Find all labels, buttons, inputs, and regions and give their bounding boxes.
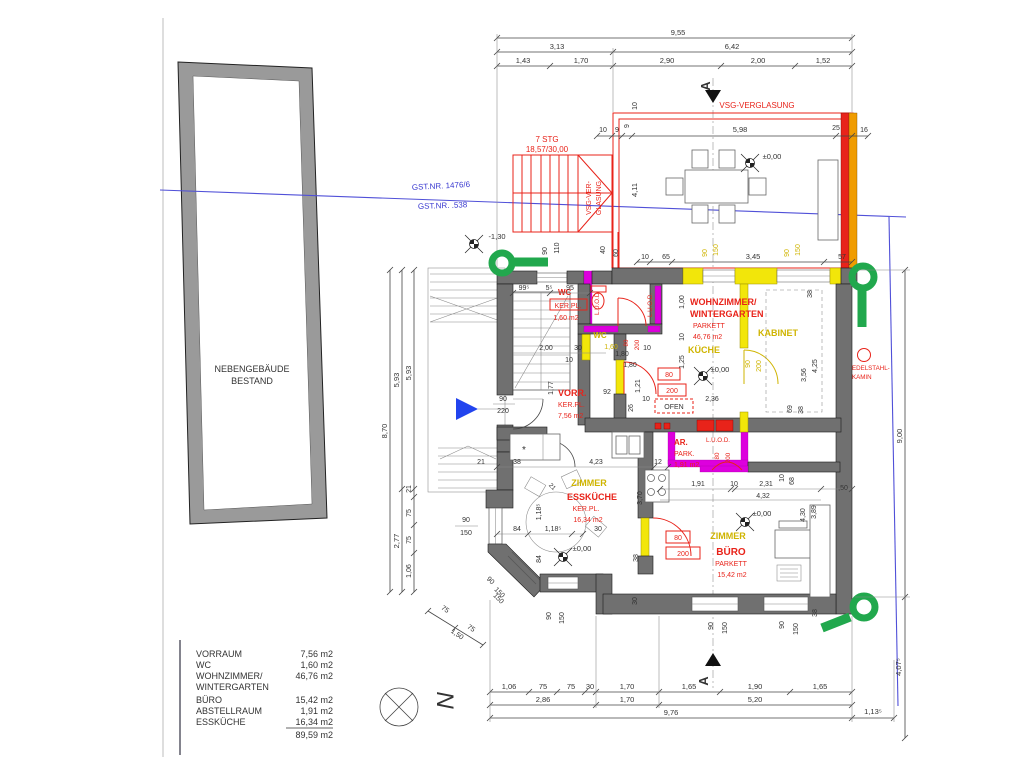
dim-191: 1,91 xyxy=(691,481,705,488)
dim-180b: 1,80 xyxy=(623,362,637,369)
level-marker-minus130 xyxy=(465,235,483,253)
dim-diag75a: 75 xyxy=(440,605,450,615)
stair-note-1: 7 STG xyxy=(535,135,558,144)
door-ar-w: 80 xyxy=(714,452,721,459)
cabinet-star: * xyxy=(510,434,560,460)
ofen-label: OFEN xyxy=(664,404,683,411)
dim-30a: 30 xyxy=(574,345,582,352)
dim-26: 26 xyxy=(628,404,635,412)
win-b90c: 90 xyxy=(779,621,786,629)
external-stair: 7 STG 18,57/30,00 VSG-VER- GLASUNG 90 11… xyxy=(513,135,620,268)
room-kueche-name: KÜCHE xyxy=(688,345,720,355)
floorplan-page: NEBENGEBÄUDE BESTAND GST.NR. 1476/6 GST.… xyxy=(0,0,1024,764)
win-b150c: 150 xyxy=(793,623,800,635)
legend-value-5: 1,91 m2 xyxy=(300,706,333,716)
win-b90b: 90 xyxy=(708,622,715,630)
section-marker-bottom: A xyxy=(696,653,721,686)
legend-label-2: WOHNZIMMER/ xyxy=(196,671,263,681)
dim-g9b: 9 xyxy=(624,124,631,128)
dim-l21: 21 xyxy=(406,485,413,493)
room-wz-name2: WINTERGARTEN xyxy=(690,309,764,319)
key-icon-topleft xyxy=(492,253,548,273)
sideboard xyxy=(818,160,838,240)
dim-10c: 10 xyxy=(642,396,650,403)
dim-389: 3,89 xyxy=(811,505,818,519)
left-dimension-chain: 8,70 5,93 2,77 5,93 21 75 75 1,06 xyxy=(380,267,417,595)
level-minus130: -1,30 xyxy=(488,232,505,241)
dim-642: 6,42 xyxy=(725,42,740,51)
section-marker-top: A xyxy=(698,81,721,103)
dim-ti345: 3,45 xyxy=(746,252,761,261)
door-kabinet-w: 90 xyxy=(745,360,752,368)
level-kueche: ±0,00 xyxy=(711,365,730,374)
door-ar-h: 200 xyxy=(725,452,732,463)
dim-38c: 38 xyxy=(812,609,819,617)
door-kueche-h: 200 xyxy=(666,388,678,395)
dim-30c: 30 xyxy=(632,597,639,605)
floorplan-drawing: NEBENGEBÄUDE BESTAND GST.NR. 1476/6 GST.… xyxy=(0,0,1024,764)
room-kabinet-name: KABINET xyxy=(758,328,799,338)
room-vorr-area: 7,56 m2 xyxy=(558,413,583,420)
dim-b106: 1,06 xyxy=(502,682,517,691)
dim-68: 68 xyxy=(789,477,796,485)
room-wc-area: 1,60 m2 xyxy=(553,315,578,322)
dim-38a: 38 xyxy=(807,290,814,298)
dim-38b: 38 xyxy=(798,406,805,414)
dim-69: 69 xyxy=(787,405,794,413)
dim-38d: 38 xyxy=(633,554,640,562)
dim-10d: 10 xyxy=(679,333,686,341)
dim-425: 4,25 xyxy=(812,359,819,373)
legend-value-2: 46,76 m2 xyxy=(295,671,333,681)
dim-125: 1,25 xyxy=(679,355,686,369)
door-kueche-w: 80 xyxy=(665,372,673,379)
legend-label-6: ESSKÜCHE xyxy=(196,717,246,727)
dim-21a: 21 xyxy=(547,482,557,492)
dim-313: 3,13 xyxy=(550,42,565,51)
north-letter: N xyxy=(431,691,458,709)
dim-356: 3,56 xyxy=(801,368,808,382)
dim-st90: 90 xyxy=(542,247,549,255)
dim-1185a: 1,18⁵ xyxy=(545,526,562,533)
dim-10e: 10 xyxy=(730,481,738,488)
dim-l75a: 75 xyxy=(406,509,413,517)
dim-b170a: 1,70 xyxy=(620,682,635,691)
room-vorr-finish: KER.PL. xyxy=(558,402,585,409)
room-essk-name1: ZIMMER xyxy=(571,478,607,488)
room-wz-area: 46,76 m2 xyxy=(693,334,722,341)
room-ar-name: AR. xyxy=(674,438,688,447)
dim-g9a: 9 xyxy=(615,127,619,134)
dim-430: 4,30 xyxy=(800,508,807,522)
key-icon-topright xyxy=(852,266,874,327)
glazing-label-side-1: VSG-VER- xyxy=(586,180,593,215)
svg-text:A: A xyxy=(698,81,713,91)
dim-b190: 1,90 xyxy=(748,682,763,691)
room-vorr-name: VORR. xyxy=(558,388,587,398)
dim-b286: 2,86 xyxy=(536,695,551,704)
property-line-2 xyxy=(889,217,898,706)
glazing-label-top: VSG-VERGLASUNG xyxy=(719,101,794,110)
dim-50: ,50 xyxy=(838,485,848,492)
dim-st60: 60 xyxy=(613,249,620,257)
dim-900: 9,00 xyxy=(895,429,904,444)
dim-b520: 5,20 xyxy=(748,695,763,704)
dim-432: 4,32 xyxy=(756,493,770,500)
dim-593b: 5,93 xyxy=(404,366,413,381)
luod-label-2: L.U.O.D. xyxy=(647,293,654,317)
stove xyxy=(645,470,669,502)
terrace-steps xyxy=(428,268,505,492)
room-wc-finish: KER.PL. xyxy=(555,303,582,310)
dim-ti57: 57 xyxy=(838,254,846,261)
door-entry-w: 90 xyxy=(499,396,507,403)
door-buero-h: 200 xyxy=(677,551,689,558)
entry-arrow xyxy=(456,398,478,420)
legend-value-4: 15,42 m2 xyxy=(295,695,333,705)
level-wintergarten: ±0,00 xyxy=(763,152,782,161)
win-diag-90: 90 xyxy=(485,576,496,587)
chimney: EDELSTAHL- KAMIN xyxy=(852,349,890,382)
door-buero-w: 80 xyxy=(674,535,682,542)
outbuilding-label-2: BESTAND xyxy=(231,376,273,386)
chimney-label-1: EDELSTAHL- xyxy=(852,365,890,372)
luod-label-1: L.U.O.D. xyxy=(594,291,601,315)
dim-ti65: 65 xyxy=(662,254,670,261)
win-bay-90: 90 xyxy=(462,517,470,524)
outbuilding-label-1: NEBENGEBÄUDE xyxy=(214,364,289,374)
room-essk-name2: ESSKÜCHE xyxy=(567,492,617,502)
parcel-number-2: GST.NR. .538 xyxy=(418,200,468,211)
dim-200: 2,00 xyxy=(751,56,766,65)
win-150a: 150 xyxy=(713,244,720,256)
room-ar-area: 1,91 m2 xyxy=(674,462,699,469)
dim-121: 1,21 xyxy=(635,379,642,393)
door-entry-h: 220 xyxy=(497,408,509,415)
dim-177: 1,77 xyxy=(548,381,555,395)
room-wz-name1: WOHNZIMMER/ xyxy=(690,297,757,307)
legend-label-1: WC xyxy=(196,660,211,670)
door-kabinet-h: 200 xyxy=(756,360,763,372)
dim-411: 4,11 xyxy=(630,183,639,197)
dim-870: 8,70 xyxy=(380,424,389,439)
luod-label-3: L.U.O.D. xyxy=(706,437,730,444)
dim-l106: 1,06 xyxy=(406,564,413,578)
dim-diag75b: 75 xyxy=(466,624,476,634)
legend-value-6: 16,34 m2 xyxy=(295,717,333,727)
legend-label-0: VORRAUM xyxy=(196,649,242,659)
svg-text:A: A xyxy=(696,676,711,686)
dim-b976: 9,76 xyxy=(664,708,679,717)
level-esskueche: ±0,00 xyxy=(573,544,592,553)
room-buero-name1: ZIMMER xyxy=(710,531,746,541)
dim-g10: 10 xyxy=(599,127,607,134)
dim-g10b: 10 xyxy=(632,102,639,110)
dim-100: 1,00 xyxy=(679,295,686,309)
dim-b75b: 75 xyxy=(567,682,575,691)
win-90b: 90 xyxy=(784,249,791,257)
room-buero-name2: BÜRO xyxy=(716,545,746,558)
dim-1185b: 1,18⁵ xyxy=(536,504,543,521)
legend-value-1: 1,60 m2 xyxy=(300,660,333,670)
legend-value-0: 7,56 m2 xyxy=(300,649,333,659)
room-buero-finish: PARKETT xyxy=(715,561,747,568)
glazing-label-side-2: GLASUNG xyxy=(596,181,603,215)
win-bay-150: 150 xyxy=(460,530,472,537)
win-b150a: 150 xyxy=(559,612,566,624)
dim-b1135: 1,13⁵ xyxy=(864,707,882,716)
dim-84b: 84 xyxy=(536,555,543,563)
outbuilding: NEBENGEBÄUDE BESTAND xyxy=(178,62,327,524)
level-marker-wintergarten xyxy=(741,154,759,172)
dim-55: 5⁵ xyxy=(546,285,553,292)
dim-st40: 40 xyxy=(600,246,607,254)
dim-143: 1,43 xyxy=(516,56,531,65)
dim-total-width: 9,55 xyxy=(671,28,686,37)
parcel-number-1: GST.NR. 1476/6 xyxy=(412,180,471,192)
dim-16: 16 xyxy=(860,127,868,134)
dim-423: 4,23 xyxy=(589,459,603,466)
dim-370: 3,70 xyxy=(637,491,644,505)
win-90a: 90 xyxy=(702,249,709,257)
dim-593a: 5,93 xyxy=(392,373,401,388)
dim-995: 99⁵ xyxy=(519,285,530,292)
room-ar-finish: PARK. xyxy=(674,451,695,458)
dim-10a: 10 xyxy=(565,357,573,364)
dim-st110: 110 xyxy=(554,242,561,253)
desk xyxy=(775,521,811,581)
dim-92: 92 xyxy=(603,389,611,396)
room-wc-yellow-area: 1,60 xyxy=(604,344,618,351)
dim-277: 2,77 xyxy=(392,534,401,549)
chimney-label-2: KAMIN xyxy=(852,374,872,381)
dim-ti10: 10 xyxy=(641,254,649,261)
dim-236: 2,36 xyxy=(705,396,719,403)
dim-598: 5,98 xyxy=(733,125,748,134)
dim-290: 2,90 xyxy=(660,56,675,65)
dim-180a: 1,80 xyxy=(615,351,629,358)
room-buero-area: 15,42 m2 xyxy=(717,572,746,579)
level-buero: ±0,00 xyxy=(753,509,772,518)
door-wc-w: 80 xyxy=(623,339,630,346)
dim-84a: 84 xyxy=(513,526,521,533)
dim-l75b: 75 xyxy=(406,536,413,544)
win-b90a: 90 xyxy=(546,612,553,620)
dim-12: 12 xyxy=(654,459,662,466)
dim-10b: 10 xyxy=(643,345,651,352)
stair-note-2: 18,57/30,00 xyxy=(526,145,569,154)
dim-30b: 30 xyxy=(594,526,602,533)
dim-b75a: 75 xyxy=(539,682,547,691)
dim-152: 1,52 xyxy=(816,56,831,65)
room-essk-finish: KER.PL. xyxy=(573,506,600,513)
dim-diag150: 1,50 xyxy=(449,628,464,642)
door-wc-h: 200 xyxy=(634,339,641,350)
legend-label-5: ABSTELLRAUM xyxy=(196,706,262,716)
star-symbol: * xyxy=(522,445,526,456)
kitchen-sink xyxy=(612,432,644,458)
dim-25: 25 xyxy=(832,125,840,132)
dim-b30: 30 xyxy=(586,682,594,691)
dim-200b: 2,00 xyxy=(539,345,553,352)
dim-231: 2,31 xyxy=(759,481,773,488)
dim-b170b: 1,70 xyxy=(620,695,635,704)
dim-4075: 4,07⁵ xyxy=(894,658,903,676)
dim-38e: 38 xyxy=(513,459,521,466)
wardrobe-dashed xyxy=(766,290,822,412)
legend: VORRAUM 7,56 m2 WC 1,60 m2 WOHNZIMMER/ 4… xyxy=(180,640,333,755)
dim-10f: 10 xyxy=(779,474,786,482)
room-wz-finish: PARKETT xyxy=(693,323,725,330)
north-symbol: N xyxy=(380,688,458,726)
legend-label-4: BÜRO xyxy=(196,695,222,705)
win-150b: 150 xyxy=(795,244,802,256)
dim-95: 95 xyxy=(566,285,574,292)
room-essk-area: 16,34 m2 xyxy=(573,517,602,524)
dim-170a: 1,70 xyxy=(574,56,589,65)
win-b150b: 150 xyxy=(722,622,729,634)
dim-b165a: 1,65 xyxy=(682,682,697,691)
legend-label-3: WINTERGARTEN xyxy=(196,682,269,692)
right-dimension-chain: 9,00 4,07⁵ xyxy=(855,267,910,741)
legend-total: 89,59 m2 xyxy=(295,730,333,740)
room-wc-yellow: WC xyxy=(593,331,607,340)
dim-21b: 21 xyxy=(477,459,485,466)
dim-b165b: 1,65 xyxy=(813,682,828,691)
